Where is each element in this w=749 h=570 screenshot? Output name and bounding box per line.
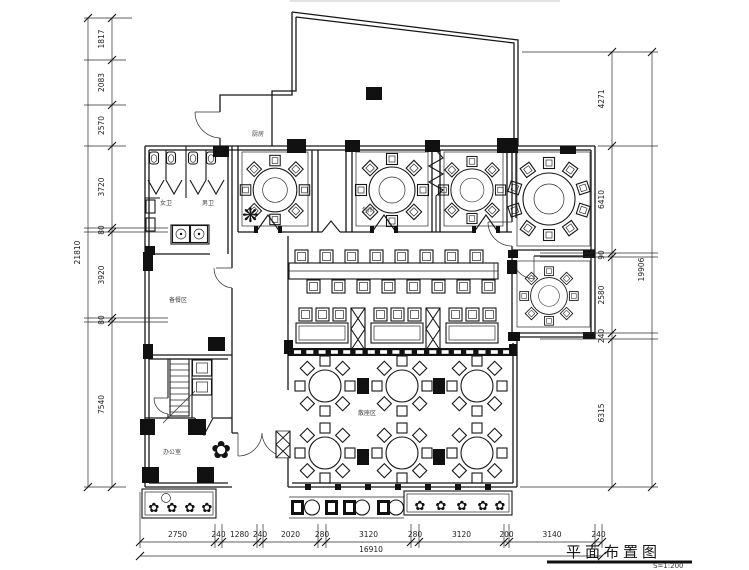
dim-label: 240 [597,329,606,344]
dim-label: 3140 [542,530,561,539]
plant-icon: ✿ [211,436,231,464]
drawing-scale: S=1:200 [653,562,683,570]
room-label-hall: 散座区 [358,409,376,417]
plant-icon: ✿ [495,499,506,514]
dim-label: 90 [597,250,606,260]
room-label-kitchen: 厨房 [252,130,264,138]
plant-icon: ✿ [167,501,178,516]
dim-label: 3120 [452,530,471,539]
dim-label: 6315 [597,403,606,422]
room-label-private: 包间 [362,206,374,214]
dim-label: 7540 [97,395,106,414]
room-label-office: 办公室 [163,448,181,456]
scan-artifact [290,0,560,2]
dim-label: 2083 [97,73,106,92]
plant-icon: ✿ [436,499,447,514]
dim-label: 280 [315,530,330,539]
dim-label: 6410 [597,190,606,209]
dim-label: 3920 [97,265,106,284]
dim-label: 1817 [97,29,106,48]
plant-icon: ✿ [457,499,468,514]
dim-label: 240 [211,530,226,539]
plant-icon: ✿ [202,501,213,516]
plant-icon: ✿ [185,501,196,516]
dim-label: 1280 [230,530,249,539]
dim-label: 240 [591,530,606,539]
plant-icon: ✿ [478,499,489,514]
plant-icon: ✿ [415,499,426,514]
dim-label: 280 [408,530,423,539]
room-label-wc-women: 女卫 [160,199,172,207]
dim-label: 80 [97,225,106,235]
dim-label: 2750 [168,530,187,539]
dim-label: 3120 [359,530,378,539]
dim-label: 2580 [597,285,606,304]
kitchen: 厨房 [252,130,264,138]
floor-plan-page: 女卫 男卫 备餐区 办公室 厨房 包间 [0,0,749,570]
room-label-prep: 备餐区 [169,296,187,304]
room-label-wc-men: 男卫 [202,200,214,207]
drawing-title: 平面布置图 [566,543,661,561]
dim-label: 3720 [97,177,106,196]
dim-label: 200 [499,530,514,539]
dim-label: 80 [97,315,106,325]
dim-total-label: 19906 [637,257,646,281]
fan-icon: ❋ [242,203,259,227]
plant-icon: ✿ [149,501,160,516]
floor-plan-drawing: 女卫 男卫 备餐区 办公室 厨房 包间 [0,0,749,570]
dim-label: 4271 [597,89,606,108]
dim-total-label: 16910 [359,545,383,554]
dim-total-label: 21810 [73,240,82,264]
dim-label: 2570 [97,116,106,135]
dim-label: 240 [253,530,268,539]
dim-label: 2020 [281,530,300,539]
